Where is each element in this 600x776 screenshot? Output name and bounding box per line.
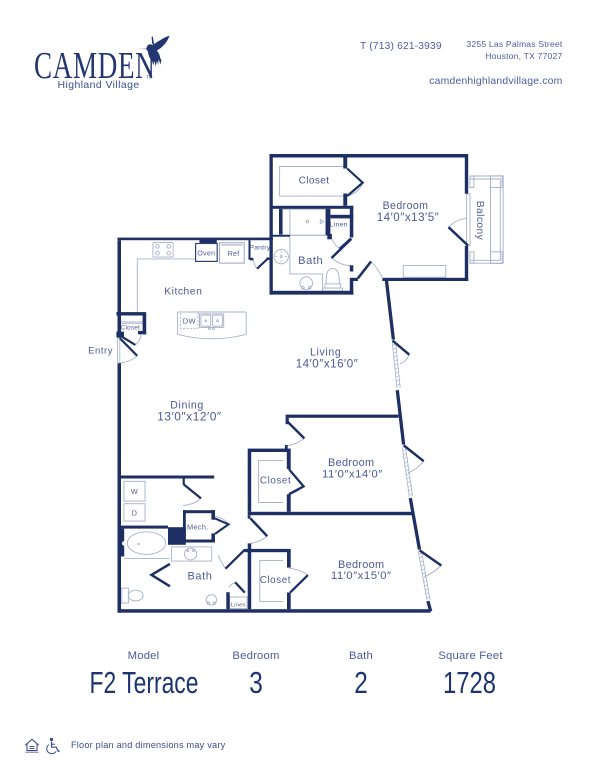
svg-text:Bedroom: Bedroom (328, 457, 374, 469)
svg-text:Bath: Bath (298, 255, 323, 267)
svg-text:Linen: Linen (231, 602, 246, 608)
svg-text:Closet: Closet (121, 325, 140, 332)
svg-text:11′0″x15′0″: 11′0″x15′0″ (331, 570, 392, 582)
svg-text:Pantry: Pantry (249, 245, 270, 252)
svg-text:DW: DW (183, 316, 197, 325)
svg-text:Oven: Oven (197, 251, 215, 258)
svg-text:Mech.: Mech. (187, 523, 209, 532)
svg-text:TM: TM (147, 74, 154, 79)
svg-text:Linen: Linen (330, 221, 348, 228)
svg-text:Bath: Bath (187, 571, 212, 583)
svg-text:Kitchen: Kitchen (164, 286, 202, 297)
svg-text:W: W (131, 487, 138, 496)
svg-text:Closet: Closet (299, 176, 330, 187)
svg-text:Closet: Closet (260, 575, 291, 586)
svg-text:D: D (132, 508, 137, 517)
svg-text:14′0″x16′0″: 14′0″x16′0″ (296, 357, 359, 370)
svg-text:Bedroom: Bedroom (383, 200, 429, 212)
svg-text:Closet: Closet (260, 476, 291, 487)
svg-text:Entry: Entry (88, 345, 113, 356)
svg-text:Balcony: Balcony (474, 201, 485, 241)
svg-text:11′0″x14′0″: 11′0″x14′0″ (322, 468, 383, 480)
svg-text:13′0″x12′0″: 13′0″x12′0″ (157, 409, 222, 423)
svg-text:14′0″x13′5″: 14′0″x13′5″ (377, 211, 440, 224)
svg-text:Ref: Ref (228, 251, 240, 258)
